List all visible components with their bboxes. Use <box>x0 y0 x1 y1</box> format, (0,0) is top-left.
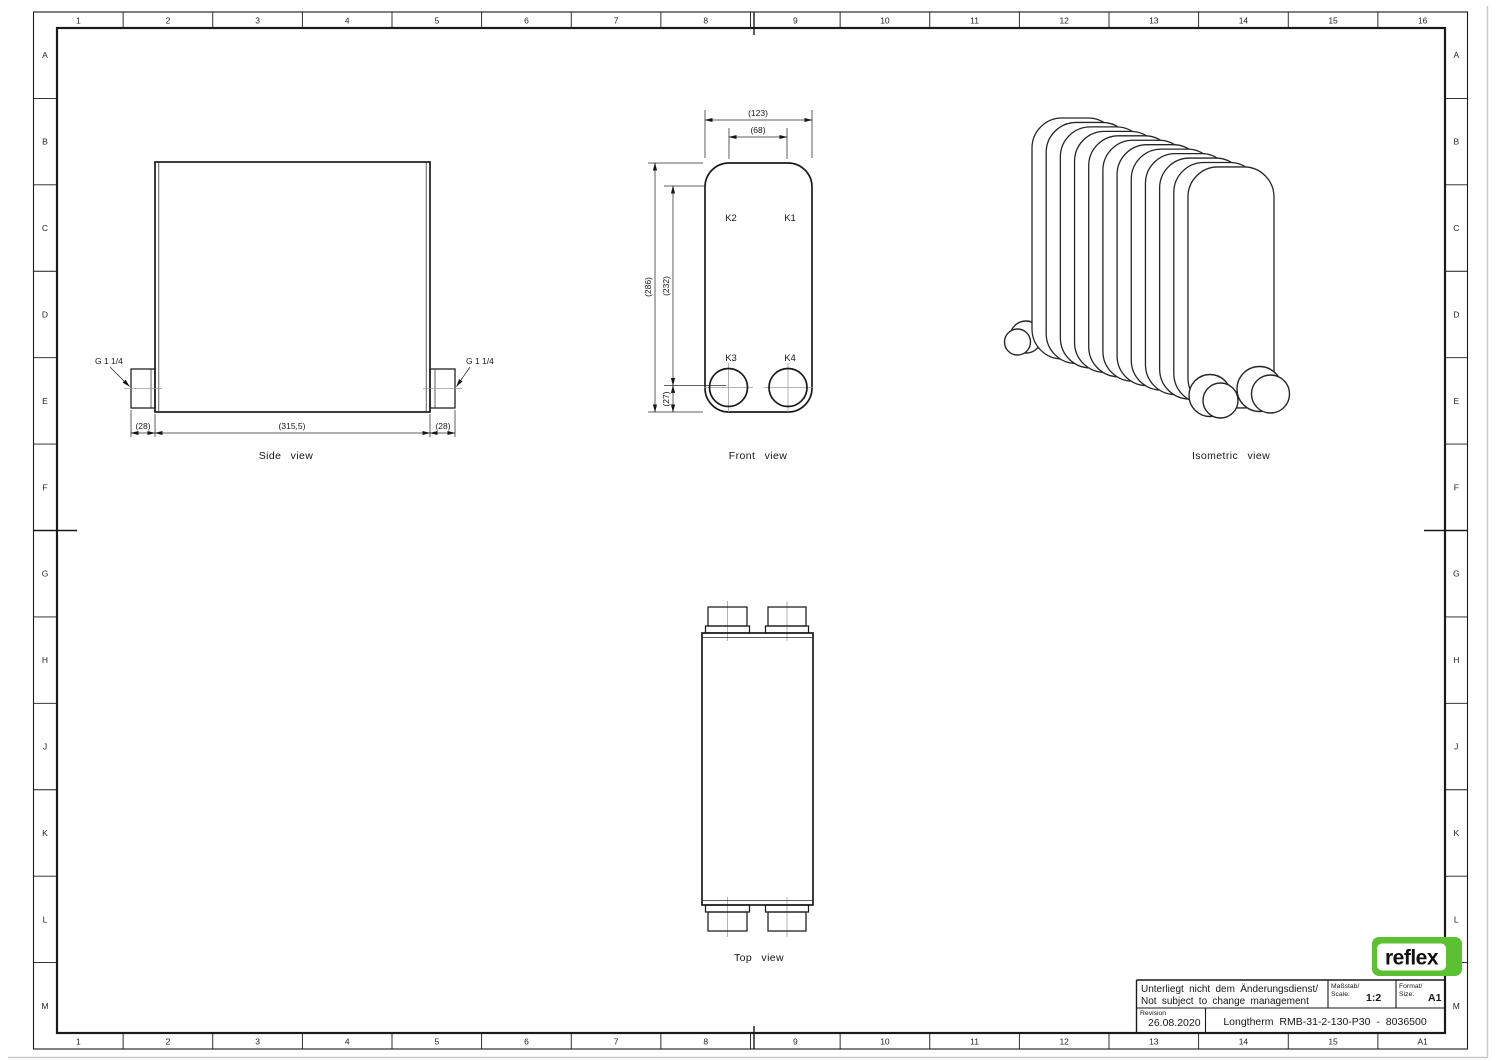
ruler-col-top: 3 <box>255 16 260 26</box>
dim-27: (27) <box>661 391 671 406</box>
side-view-body <box>155 162 430 412</box>
ruler-row-right: M <box>1453 1001 1460 1011</box>
drawing-canvas: 1234567891011121314151612345678910111213… <box>0 0 1500 1061</box>
dim-286: (286) <box>643 277 653 297</box>
ruler-row-left: B <box>42 137 48 147</box>
ruler-col-bottom: 12 <box>1059 1037 1069 1047</box>
ruler-col-bottom: 4 <box>345 1037 350 1047</box>
ruler-row-right: A <box>1453 50 1459 60</box>
iso-front-port-right <box>1237 367 1290 414</box>
side-port-right <box>423 369 462 408</box>
format-value: A1 <box>1428 992 1442 1004</box>
front-view-label: Front view <box>729 450 787 462</box>
ruler-row-left: G <box>42 569 49 579</box>
ruler-col-top: 14 <box>1239 16 1249 26</box>
dim-315-5: (315,5) <box>279 421 306 431</box>
change-note-line1: Unterliegt nicht dem Änderungsdienst/ <box>1141 983 1318 995</box>
ruler-col-top: 5 <box>434 16 439 26</box>
dim-232: (232) <box>661 276 671 296</box>
ruler-col-bottom: 3 <box>255 1037 260 1047</box>
ruler-row-right: E <box>1453 396 1459 406</box>
scale-label-en: Scale: <box>1331 991 1350 998</box>
ruler-col-bottom: 1 <box>76 1037 81 1047</box>
dim-28-right: (28) <box>435 421 450 431</box>
ruler-col-top: 8 <box>703 16 708 26</box>
reflex-logo: reflex <box>1372 937 1462 976</box>
reflex-logo-text: reflex <box>1385 947 1439 970</box>
dim-68: (68) <box>750 125 765 135</box>
side-port-left <box>124 369 162 408</box>
ruler-col-top: 16 <box>1418 16 1428 26</box>
port-label-k3: K3 <box>725 353 737 364</box>
title-block: Unterliegt nicht dem Änderungsdienst/ No… <box>1137 980 1446 1033</box>
ruler-col-bottom: 8 <box>703 1037 708 1047</box>
thread-label-left: G 1 1/4 <box>95 356 123 366</box>
ruler-col-top: 11 <box>970 16 979 26</box>
top-view-upper-ports <box>706 607 809 633</box>
dim-123: (123) <box>748 108 768 118</box>
ruler-row-right: J <box>1454 742 1458 752</box>
ruler-row-right: D <box>1453 309 1459 319</box>
drawing-title: Longtherm RMB-31-2-130-P30 - 8036500 <box>1223 1016 1427 1028</box>
ruler-col-bottom: 13 <box>1149 1037 1159 1047</box>
ruler-col-bottom: 10 <box>880 1037 890 1047</box>
ruler-col-top: 13 <box>1149 16 1159 26</box>
revision-label: Revision <box>1140 1010 1166 1017</box>
iso-plate-stack <box>1032 118 1274 408</box>
dim-28-left: (28) <box>135 421 150 431</box>
ruler-col-top: 2 <box>166 16 171 26</box>
ruler-col-bottom: A1 <box>1417 1037 1428 1047</box>
port-label-k1: K1 <box>784 213 796 224</box>
ruler-row-right: H <box>1453 655 1459 665</box>
change-note-line2: Not subject to change management <box>1141 996 1309 1007</box>
front-view: K2 K1 K3 K4 (123) (68) (286) (232) (27) <box>643 108 813 462</box>
ruler-row-right: C <box>1453 223 1459 233</box>
ruler-row-left: F <box>42 482 47 492</box>
top-view: Top view <box>702 601 813 964</box>
ruler-row-left: H <box>42 655 48 665</box>
format-label-de: Format/ <box>1399 983 1423 990</box>
ruler-row-left: J <box>43 742 47 752</box>
front-view-body <box>705 163 812 412</box>
ruler-col-bottom: 2 <box>166 1037 171 1047</box>
ruler-row-right: F <box>1454 482 1459 492</box>
top-view-lower-ports <box>706 905 809 931</box>
thread-label-right: G 1 1/4 <box>466 356 494 366</box>
drawing-sheet: 1234567891011121314151612345678910111213… <box>0 0 1500 1061</box>
ruler-col-top: 6 <box>524 16 529 26</box>
ruler-col-bottom: 7 <box>614 1037 619 1047</box>
ruler-col-top: 7 <box>614 16 619 26</box>
scale-value: 1:2 <box>1366 992 1381 1004</box>
ruler-row-left: C <box>42 223 48 233</box>
ruler-row-right: G <box>1453 569 1460 579</box>
ruler-col-top: 4 <box>345 16 350 26</box>
ruler-row-right: K <box>1453 828 1459 838</box>
ruler-col-bottom: 11 <box>970 1037 979 1047</box>
ruler-col-bottom: 15 <box>1328 1037 1338 1047</box>
ruler-col-bottom: 14 <box>1239 1037 1249 1047</box>
port-label-k2: K2 <box>725 213 737 224</box>
ruler-row-left: D <box>42 309 48 319</box>
ruler-col-bottom: 9 <box>793 1037 798 1047</box>
ruler-col-top: 10 <box>880 16 890 26</box>
ruler-col-bottom: 6 <box>524 1037 529 1047</box>
top-view-body <box>702 633 813 905</box>
scale-label-de: Maßstab/ <box>1331 983 1359 990</box>
ruler-row-left: K <box>42 828 48 838</box>
ruler-col-top: 15 <box>1328 16 1338 26</box>
iso-rear-port-cap <box>1005 329 1031 355</box>
ruler-col-top: 1 <box>76 16 81 26</box>
ruler-row-left: A <box>42 50 48 60</box>
ruler-row-left: L <box>43 914 48 924</box>
side-view-label: Side view <box>259 450 314 462</box>
isometric-view-label: Isometric view <box>1192 450 1270 462</box>
top-view-label: Top view <box>734 952 784 964</box>
port-label-k4: K4 <box>784 353 796 364</box>
ruler-col-top: 12 <box>1059 16 1069 26</box>
side-dimensions: (28) (315,5) (28) <box>131 410 455 437</box>
revision-date: 26.08.2020 <box>1148 1017 1201 1029</box>
ruler-row-left: M <box>41 1001 48 1011</box>
side-view: G 1 1/4 G 1 1/4 (28) (315,5) (28) Side v… <box>95 162 494 462</box>
ruler-col-bottom: 5 <box>434 1037 439 1047</box>
ruler-row-right: L <box>1454 914 1459 924</box>
isometric-view: Isometric view <box>1005 118 1290 462</box>
ruler-row-left: E <box>42 396 48 406</box>
format-label-en: Size: <box>1399 991 1414 998</box>
ruler-row-right: B <box>1453 137 1459 147</box>
ruler-col-top: 9 <box>793 16 798 26</box>
front-top-dimensions: (123) (68) <box>705 108 812 159</box>
